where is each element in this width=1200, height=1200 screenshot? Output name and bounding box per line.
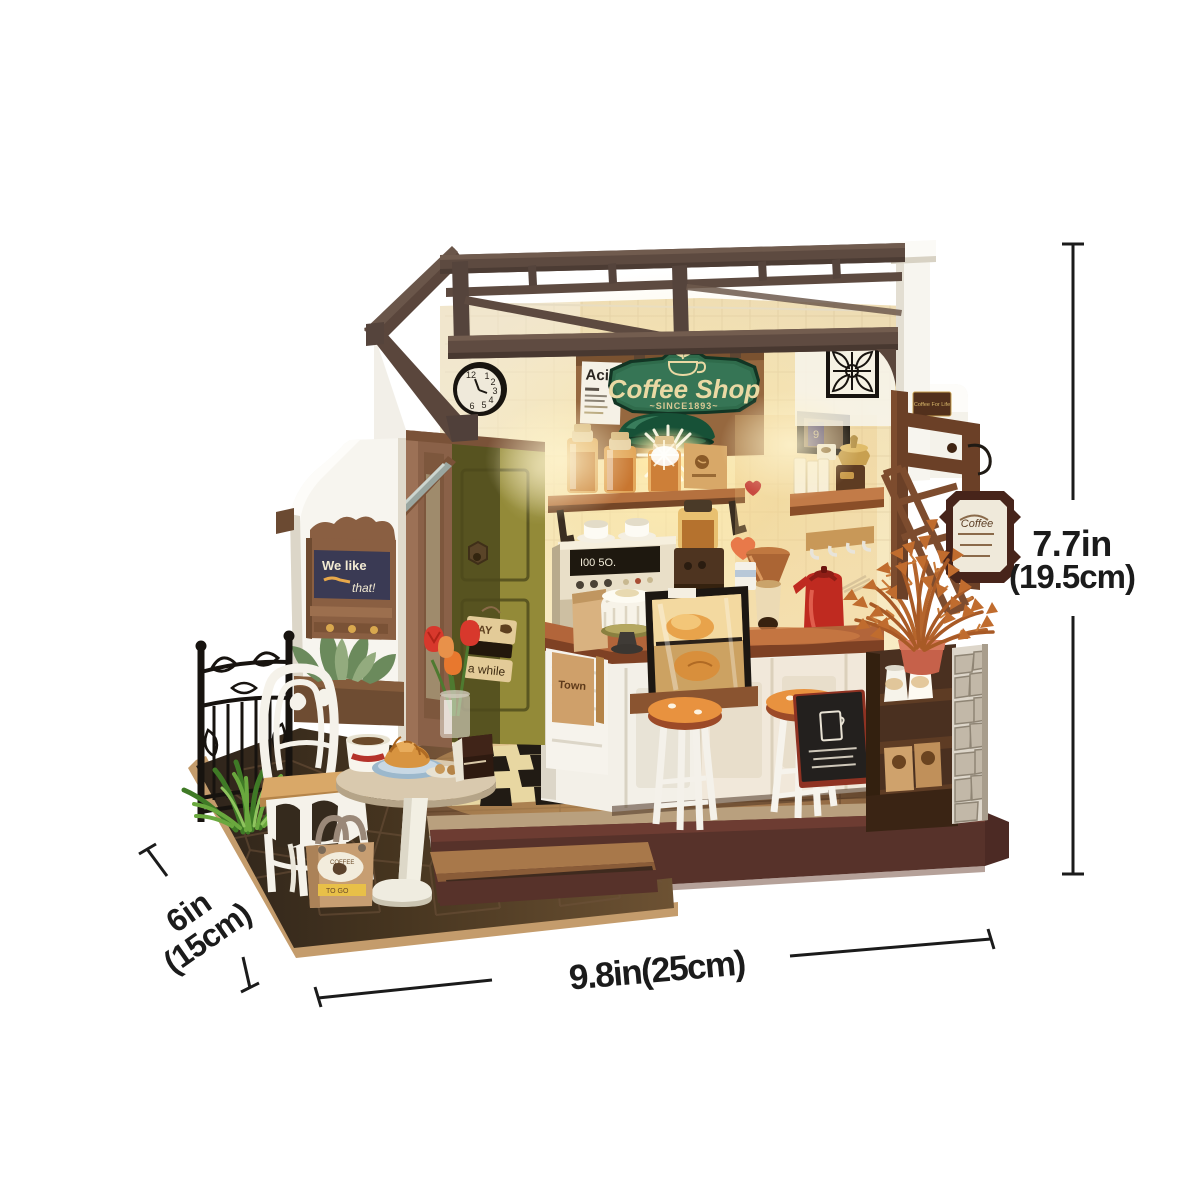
svg-text:TO GO: TO GO <box>326 888 349 895</box>
svg-text:that!: that! <box>352 581 376 595</box>
svg-text:1: 1 <box>484 371 489 381</box>
svg-text:4: 4 <box>488 395 493 405</box>
svg-text:Town: Town <box>558 679 587 693</box>
svg-text:~SINCE1893~: ~SINCE1893~ <box>649 401 718 411</box>
svg-text:COFFEE: COFFEE <box>330 860 354 866</box>
svg-text:We like: We like <box>322 558 367 573</box>
svg-text:6: 6 <box>469 401 474 411</box>
svg-text:12: 12 <box>466 370 476 380</box>
svg-text:Coffee: Coffee <box>961 518 993 530</box>
svg-text:Coffee Shop: Coffee Shop <box>608 374 761 404</box>
svg-text:Aci: Aci <box>585 366 609 384</box>
svg-text:I00 5O.: I00 5O. <box>580 557 616 569</box>
svg-text:(19.5cm): (19.5cm) <box>1009 558 1135 595</box>
svg-text:Coffee For Life: Coffee For Life <box>914 402 950 408</box>
svg-text:5: 5 <box>481 400 486 410</box>
